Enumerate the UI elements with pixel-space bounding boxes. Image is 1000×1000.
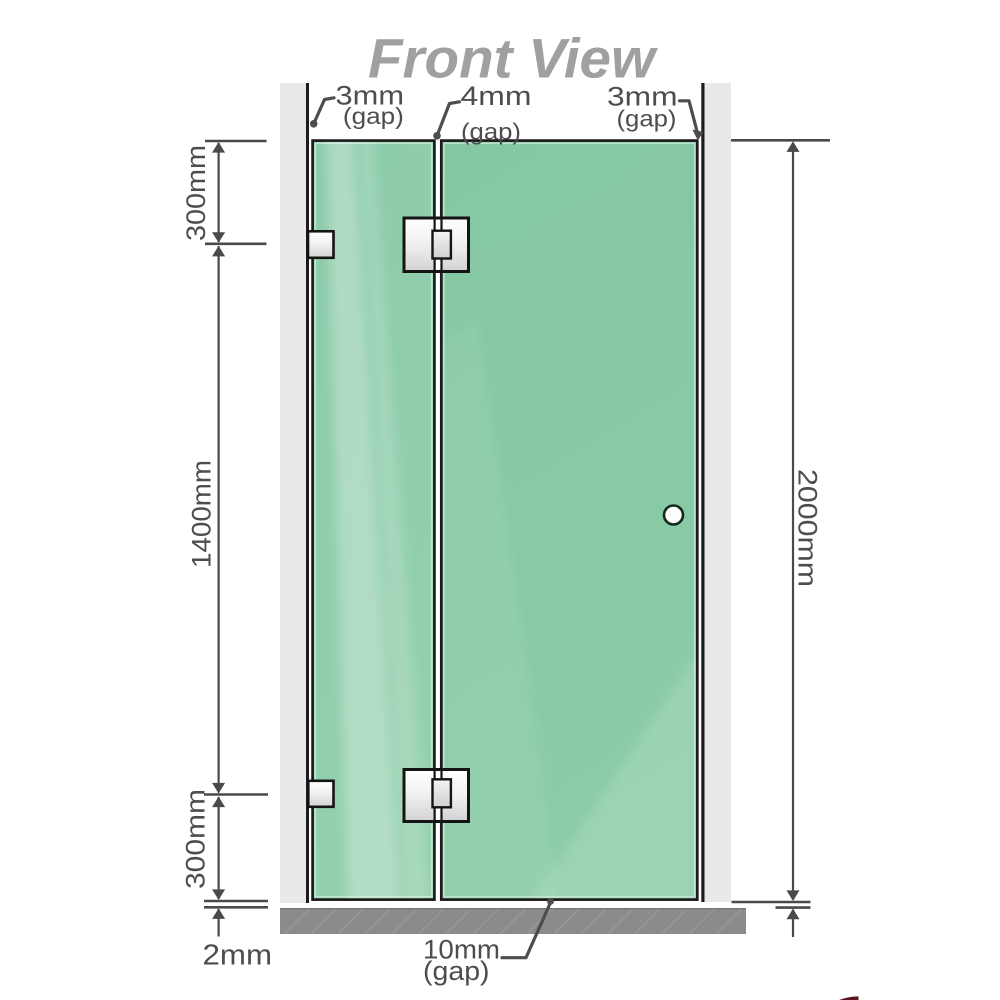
svg-text:2mm: 2mm <box>203 939 273 971</box>
svg-text:1400mm: 1400mm <box>187 460 217 568</box>
svg-text:300mm: 300mm <box>181 145 211 241</box>
svg-text:(gap): (gap) <box>343 103 404 129</box>
svg-text:2000mm: 2000mm <box>793 469 823 587</box>
svg-text:(gap): (gap) <box>617 106 677 132</box>
svg-text:Front View: Front View <box>368 27 658 90</box>
svg-text:(gap): (gap) <box>423 956 490 986</box>
svg-text:300mm: 300mm <box>181 789 211 889</box>
svg-text:(gap): (gap) <box>461 118 521 144</box>
